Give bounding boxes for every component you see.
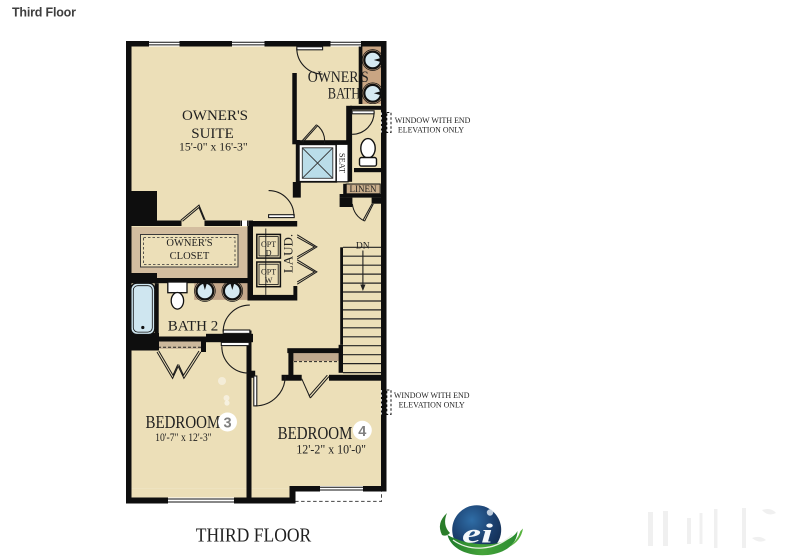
svg-text:BATH: BATH — [328, 84, 361, 103]
svg-text:BEDROOM: BEDROOM — [278, 423, 353, 443]
svg-text:12'-2" x 10'-0": 12'-2" x 10'-0" — [296, 442, 366, 456]
svg-text:W: W — [265, 276, 273, 285]
svg-text:BEDROOM: BEDROOM — [145, 412, 220, 432]
svg-text:4: 4 — [358, 424, 366, 440]
svg-text:LINEN: LINEN — [350, 184, 377, 194]
svg-text:THIRD FLOOR: THIRD FLOOR — [196, 525, 312, 547]
svg-text:DN: DN — [356, 242, 370, 252]
svg-text:CLOSET: CLOSET — [170, 251, 210, 262]
svg-text:ELEVATION ONLY: ELEVATION ONLY — [398, 126, 464, 135]
svg-text:D: D — [266, 249, 272, 258]
svg-text:WINDOW WITH END: WINDOW WITH END — [394, 391, 470, 400]
svg-text:15'-0" x 16'-3": 15'-0" x 16'-3" — [179, 140, 248, 154]
svg-text:SEAT: SEAT — [338, 153, 348, 174]
svg-text:WINDOW WITH END: WINDOW WITH END — [395, 116, 471, 125]
svg-text:LAUD.: LAUD. — [281, 234, 296, 273]
svg-text:ELEVATION ONLY: ELEVATION ONLY — [399, 401, 465, 410]
svg-text:10'-7" x 12'-3": 10'-7" x 12'-3" — [155, 432, 212, 444]
svg-text:3: 3 — [223, 416, 231, 432]
svg-text:ei: ei — [462, 519, 494, 549]
svg-text:OWNER'S: OWNER'S — [182, 108, 248, 124]
svg-text:Third Floor: Third Floor — [12, 6, 76, 20]
svg-text:OWNER'S: OWNER'S — [166, 238, 212, 249]
svg-text:BATH 2: BATH 2 — [168, 319, 218, 335]
